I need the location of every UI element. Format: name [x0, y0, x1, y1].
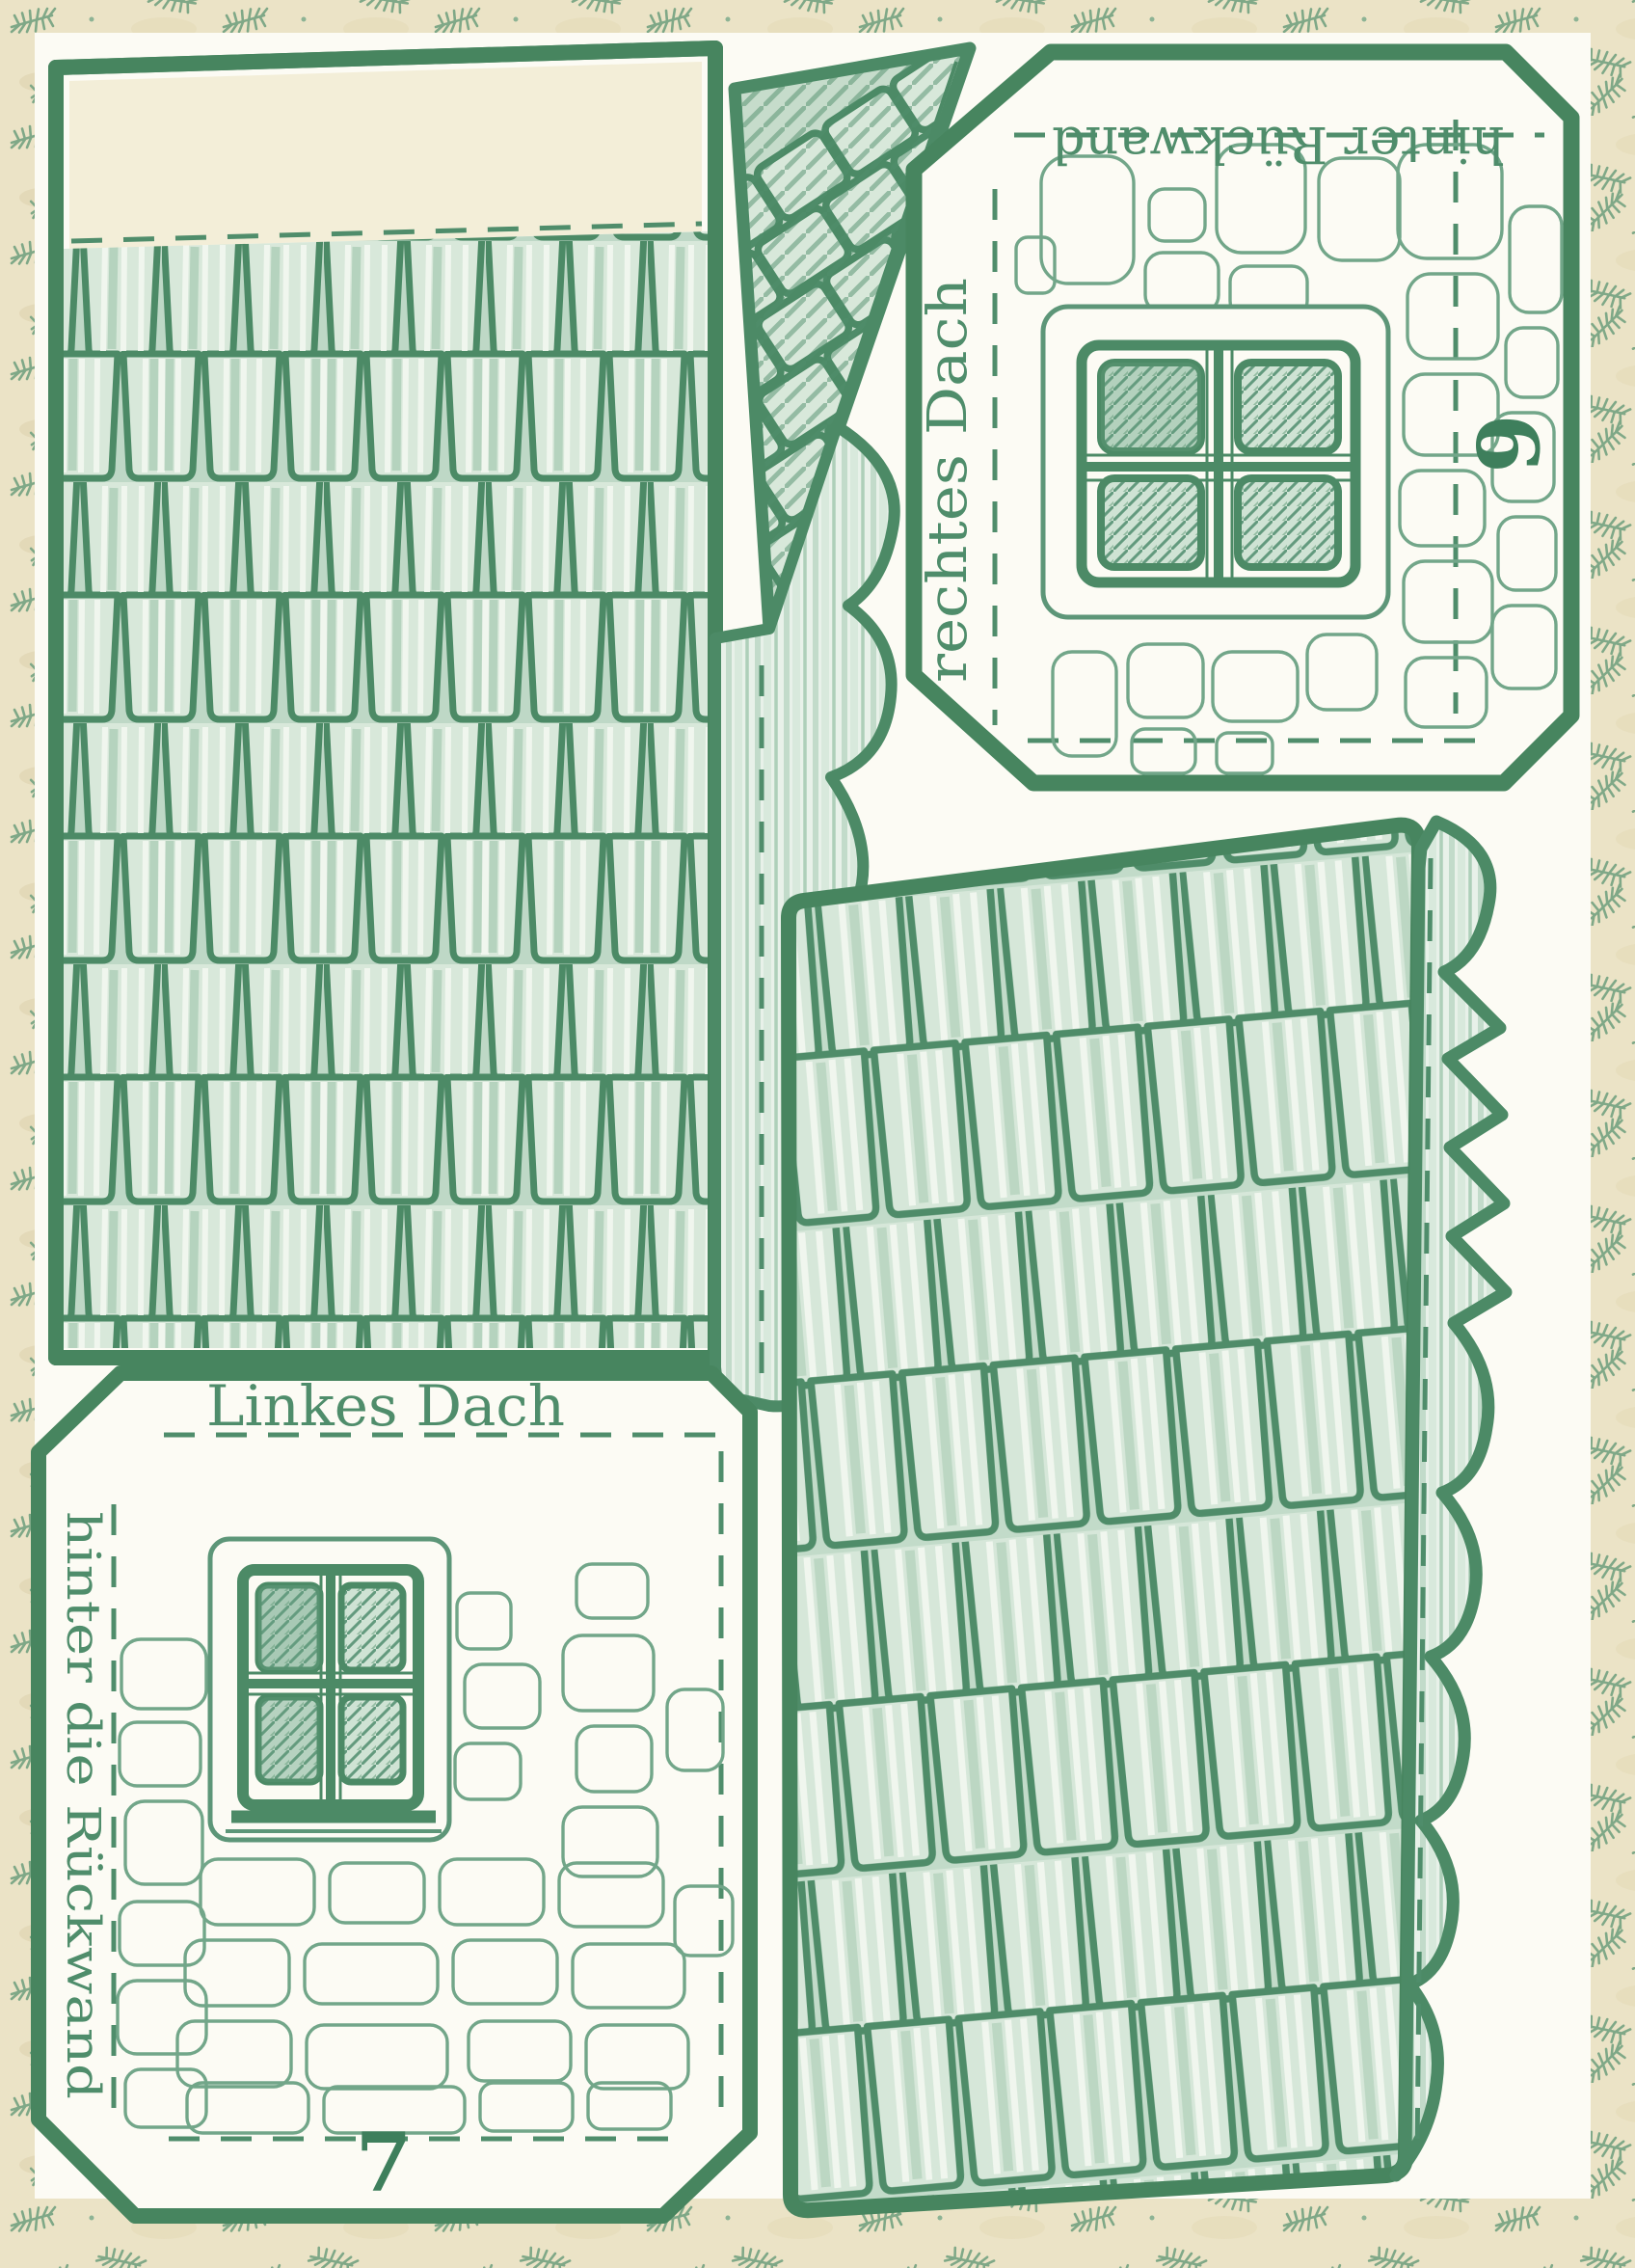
piece-7-top-edge-label: Linkes Dach [206, 1373, 565, 1439]
shingle-texture [64, 231, 710, 1348]
piece-6-top-edge-label: hinter Rückwand [1052, 115, 1505, 173]
sheet-drawing: hinter Rückwand rechtes Dach 6 [0, 0, 1635, 2268]
piece-6-left-edge-label: rechtes Dach [917, 278, 979, 683]
piece-6-window [1043, 307, 1388, 617]
piece-7-back-wall: Linkes Dach hinter die Rückwand 7 [39, 1373, 750, 2216]
craft-cutout-sheet: hinter Rückwand rechtes Dach 6 [0, 0, 1635, 2268]
piece-6-number: 6 [1457, 414, 1557, 472]
piece-7-window [210, 1539, 449, 1840]
window-pane [1238, 363, 1338, 451]
piece-6-back-wall: hinter Rückwand rechtes Dach 6 [914, 52, 1571, 783]
window-pane [341, 1697, 403, 1782]
window-pane [341, 1585, 403, 1670]
window-pane [1238, 478, 1338, 567]
piece-7-number: 7 [356, 2115, 412, 2210]
right-roof-piece [789, 822, 1506, 2210]
glue-tab [69, 62, 702, 249]
piece-7-left-edge-label: hinter die Rückwand [56, 1511, 110, 2099]
window-pane [1101, 478, 1201, 567]
right-roof-outline [789, 825, 1419, 2211]
